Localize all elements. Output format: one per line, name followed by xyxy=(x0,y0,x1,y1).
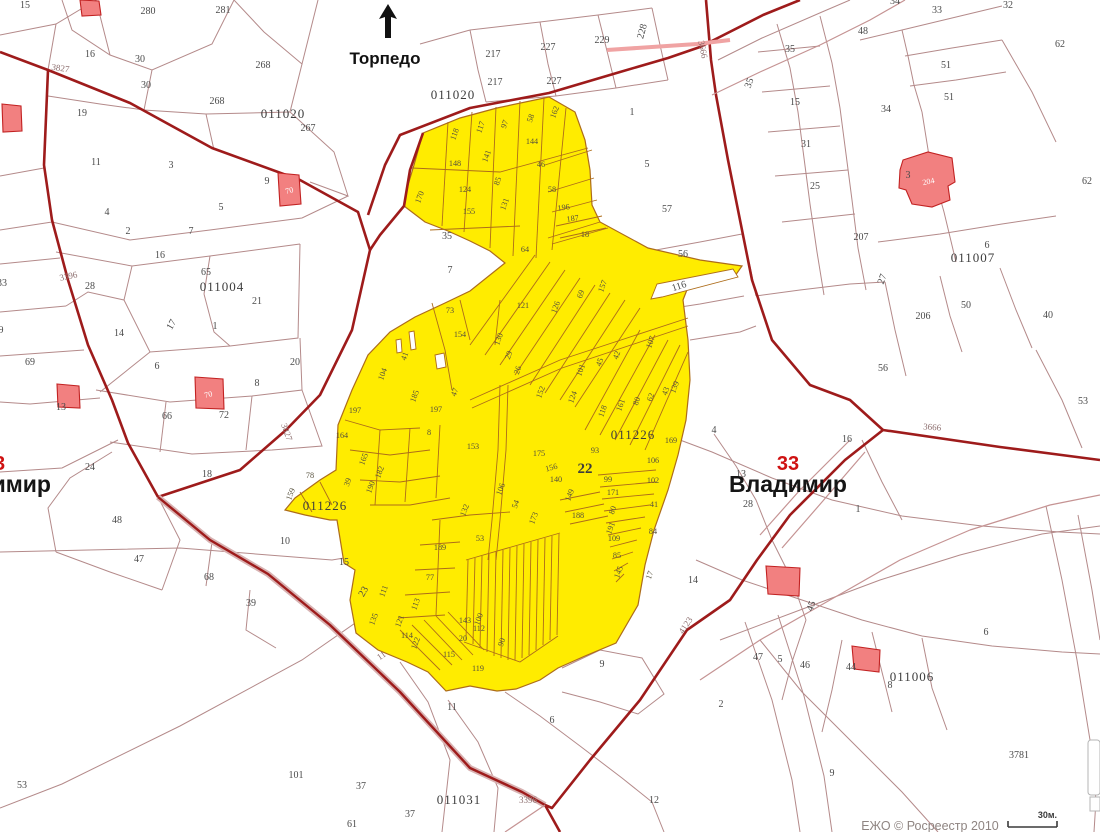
lot-number-label: 119 xyxy=(472,664,484,673)
parcel-number-label: 48 xyxy=(858,26,868,37)
copyright-text: ЕЖО © Росреестр 2010 xyxy=(861,819,999,832)
parcel-number-label: 53 xyxy=(17,780,27,791)
parcel-number-label: 229 xyxy=(595,35,610,46)
north-arrow-icon xyxy=(379,4,397,38)
parcel-boundary-line xyxy=(718,0,850,60)
cadastral-map-canvas[interactable]: 7070204 15280281163030268268267191139542… xyxy=(0,0,1100,832)
parcel-number-label: 40 xyxy=(1043,310,1053,321)
lot-number-label: 175 xyxy=(533,449,545,458)
quarter-number-label[interactable]: 011020 xyxy=(431,87,476,102)
parcel-boundary-line xyxy=(234,0,318,64)
lot-number-label: 20 xyxy=(459,634,467,643)
lot-number-label: 93 xyxy=(591,446,599,455)
lot-number-label: 114 xyxy=(401,631,413,640)
parcel-number-label: 3781 xyxy=(1009,750,1029,761)
lot-number-label: 109 xyxy=(608,534,620,543)
lot-number-label: 140 xyxy=(550,475,562,484)
parcel-boundary-line xyxy=(100,352,150,392)
parcel-number-label: 34 xyxy=(890,0,900,7)
parcel-boundary-line xyxy=(775,170,848,176)
parcel-number-label: 8 xyxy=(255,378,260,389)
parcel-number-label: 12 xyxy=(649,795,659,806)
lot-number-label: 17 xyxy=(644,570,655,581)
parcel-boundary-line xyxy=(124,244,300,352)
quarter-number-label[interactable]: 011020 xyxy=(261,106,306,121)
parcel-number-label: 62 xyxy=(1055,39,1065,50)
parcel-boundary-line xyxy=(860,6,1002,40)
parcel-number-label: 4 xyxy=(105,207,110,218)
parcel-boundary-line xyxy=(420,30,470,44)
parcel-number-label: 10 xyxy=(280,536,290,547)
quarter-number-label[interactable]: 011007 xyxy=(951,250,996,265)
scale-bar-label: 30м. xyxy=(1038,810,1057,820)
parcel-number-label: 25 xyxy=(810,181,820,192)
parcel-number-label: 15 xyxy=(20,0,30,11)
parcel-boundary-line xyxy=(690,326,756,340)
compass-label: Торпедо xyxy=(350,49,421,68)
quarter-number-label[interactable]: 011031 xyxy=(437,792,482,807)
parcel-boundary-line xyxy=(160,402,166,452)
parcel-boundary-line xyxy=(0,398,100,404)
parcel-number-label: 16 xyxy=(85,49,95,60)
lot-number-label: 46 xyxy=(537,160,545,169)
parcel-number-label: 28 xyxy=(85,281,95,292)
parcel-number-label: 30 xyxy=(141,80,151,91)
parcel-number-label: 5 xyxy=(645,159,650,170)
lot-number-label: 153 xyxy=(467,442,479,451)
parcel-boundary-line xyxy=(52,196,348,240)
parcel-22-label: 22 xyxy=(578,461,593,477)
parcel-number-label: 47 xyxy=(753,652,763,663)
parcel-boundary-line xyxy=(0,350,84,356)
parcel-number-label: 1 xyxy=(856,504,861,515)
lot-number-label: 197 xyxy=(349,406,361,415)
parcel-number-label: 72 xyxy=(219,410,229,421)
parcel-number-label: 47 xyxy=(134,554,144,565)
lot-number-label: 115 xyxy=(443,650,455,659)
parcel-boundary-line xyxy=(940,276,962,352)
quarter-number-label[interactable]: 011006 xyxy=(890,669,935,684)
parcel-boundary-line xyxy=(204,294,230,346)
parcel-boundary-line xyxy=(0,168,44,176)
parcel-number-label: 33 xyxy=(932,5,942,16)
parcel-number-label: 17 xyxy=(165,318,180,332)
map-side-control[interactable] xyxy=(1088,740,1100,811)
parcel-boundary-line xyxy=(470,8,652,30)
lot-number-label: 99 xyxy=(604,475,612,484)
parcel-number-label: 53 xyxy=(1078,396,1088,407)
parcel-number-label: 268 xyxy=(256,60,271,71)
parcel-boundary-line xyxy=(0,306,66,312)
lot-number-label: 78 xyxy=(306,471,314,480)
lot-number-label: 148 xyxy=(449,159,461,168)
lot-number-label: 64 xyxy=(521,245,529,254)
lot-number-label: 41 xyxy=(650,500,658,509)
parcel-number-label: 33 xyxy=(0,278,7,289)
parcel-number-label: 34 xyxy=(881,104,891,115)
parcel-boundary-line xyxy=(777,24,824,295)
lot-number-label: 112 xyxy=(473,624,485,633)
parcel-boundary-line xyxy=(1000,268,1032,348)
parcel-number-label: 46 xyxy=(800,660,810,671)
parcel-boundary-line xyxy=(56,552,162,590)
road-number-label: 3666 xyxy=(923,421,942,432)
parcel-number-label: 101 xyxy=(289,770,304,781)
parcel-number-label: 13 xyxy=(56,402,66,413)
lot-number-label: 84 xyxy=(649,527,657,536)
lot-number-label: 144 xyxy=(526,137,538,146)
parcel-boundary-line xyxy=(922,638,947,730)
city-name-label: Владимир xyxy=(0,471,51,497)
parcel-number-label: 62 xyxy=(1082,176,1092,187)
parcel-boundary-line xyxy=(448,700,498,832)
lot-number-label: 188 xyxy=(572,511,584,520)
building-footprint[interactable] xyxy=(80,0,101,16)
parcel-number-label: 6 xyxy=(550,715,555,726)
lot-number-label: 169 xyxy=(665,436,677,445)
parcel-number-label: 69 xyxy=(25,357,35,368)
north-arrow: Торпедо xyxy=(350,4,421,68)
parcel-number-label: 45 xyxy=(805,600,819,613)
parcel-number-label: 3 xyxy=(906,170,911,181)
parcel-number-label: 227 xyxy=(547,76,562,87)
parcel-number-label: 267 xyxy=(301,123,316,134)
parcel-number-label: 19 xyxy=(77,108,87,119)
road-main xyxy=(0,52,370,497)
map-zoom-control[interactable] xyxy=(1088,740,1100,795)
parcel-number-label: 1 xyxy=(630,107,635,118)
parcel-boundary-line xyxy=(822,640,842,732)
parcel-boundary-line xyxy=(905,40,1002,56)
parcel-number-label: 57 xyxy=(662,204,672,215)
road-number-label: 3396 xyxy=(59,269,79,283)
parcel-number-label: 50 xyxy=(961,300,971,311)
lot-number-label: 187 xyxy=(566,213,579,224)
road-pink xyxy=(607,40,730,50)
road-main xyxy=(44,70,158,497)
road-light xyxy=(505,805,545,832)
parcel-boundary-line xyxy=(902,30,922,112)
parcel-number-label: 32 xyxy=(1003,0,1013,11)
parcel-number-label: 18 xyxy=(202,469,212,480)
parcel-number-label: 280 xyxy=(141,6,156,17)
lot-number-label: 77 xyxy=(426,573,434,582)
parcel-number-label: 15 xyxy=(790,97,800,108)
lot-number-label: 58 xyxy=(548,185,556,194)
parcel-boundary-line xyxy=(820,16,866,290)
parcel-number-label: 3 xyxy=(169,160,174,171)
parcel-boundary-line xyxy=(1002,40,1056,142)
parcel-number-label: 48 xyxy=(112,515,122,526)
parcel-boundary-line xyxy=(246,396,252,450)
lot-number-label: 102 xyxy=(647,476,659,485)
lot-number-label: 143 xyxy=(459,616,471,625)
building-footprint[interactable] xyxy=(852,646,880,672)
parcel-boundary-line xyxy=(0,222,52,230)
quarter-number-label[interactable]: 011226 xyxy=(303,498,348,513)
parcel-boundary-line xyxy=(48,452,112,552)
quarter-number-label[interactable]: 011226 xyxy=(611,427,656,442)
parcel-number-label: 207 xyxy=(854,232,869,243)
parcel-number-label: 39 xyxy=(246,598,256,609)
parcel-number-label: 16 xyxy=(155,250,165,261)
parcel-number-label: 2 xyxy=(719,699,724,710)
parcel-number-label: 66 xyxy=(162,411,172,422)
lot-number-label: 53 xyxy=(476,534,484,543)
parcel-boundary-line xyxy=(0,440,118,472)
cadastral-map-page: 7070204 15280281163030268268267191139542… xyxy=(0,0,1100,832)
road-main xyxy=(883,430,1100,460)
parcel-number-label: 228 xyxy=(635,23,650,40)
parcel-number-label: 35 xyxy=(785,44,795,55)
parcel-boundary-line xyxy=(1036,350,1082,448)
parcel-number-label: 21 xyxy=(252,296,262,307)
parcel-number-label: 217 xyxy=(486,49,501,60)
parcel-number-label: 16 xyxy=(842,434,852,445)
parcel-number-label: 6 xyxy=(984,627,989,638)
parcel-number-label: 9 xyxy=(0,325,4,336)
quarter-number-label[interactable]: 011004 xyxy=(200,279,245,294)
road-number-label: 3396 xyxy=(519,795,538,805)
parcel-boundary-line xyxy=(885,282,906,376)
parcel-boundary-line xyxy=(878,216,1056,242)
parcel-number-label: 11 xyxy=(447,702,457,713)
parcel-number-label: 51 xyxy=(944,92,954,103)
parcel-number-label: 35 xyxy=(442,231,452,242)
parcel-boundary-line xyxy=(648,428,1100,534)
parcel-number-label: 65 xyxy=(201,267,211,278)
lot-number-label: 155 xyxy=(463,207,475,216)
lot-number-label: 197 xyxy=(430,405,442,414)
parcel-number-label: 281 xyxy=(216,5,231,16)
quarter-inner-white-parcel xyxy=(435,353,446,369)
lot-number-label: 8 xyxy=(427,428,431,437)
parcel-number-label: 30 xyxy=(135,54,145,65)
parcel-number-label: 11 xyxy=(91,157,101,168)
parcel-number-label: 44 xyxy=(846,662,856,673)
parcel-number-label: 1 xyxy=(213,321,218,332)
parcel-number-label: 24 xyxy=(85,462,95,473)
parcel-number-label: 9 xyxy=(600,659,605,670)
parcel-number-label: 56 xyxy=(878,363,888,374)
parcel-number-label: 61 xyxy=(347,819,357,830)
parcel-number-label: 9 xyxy=(830,768,835,779)
parcel-boundary-line xyxy=(645,234,742,252)
parcel-number-label: 6 xyxy=(155,361,160,372)
parcel-boundary-line xyxy=(910,72,1006,86)
parcel-number-label: 206 xyxy=(916,311,931,322)
lot-number-label: 121 xyxy=(517,301,529,310)
parcel-boundary-line xyxy=(0,258,60,264)
road-main xyxy=(706,0,883,430)
parcel-number-label: 56 xyxy=(678,249,688,260)
lot-number-label: 189 xyxy=(434,543,446,552)
parcel-number-label: 35 xyxy=(743,77,757,90)
parcel-number-label: 2 xyxy=(126,226,131,237)
parcel-number-label: 227 xyxy=(541,42,556,53)
parcel-number-label: 4 xyxy=(712,425,717,436)
lot-number-label: 73 xyxy=(446,306,454,315)
parcel-number-label: 28 xyxy=(743,499,753,510)
parcel-number-label: 7 xyxy=(189,226,194,237)
parcel-number-label: 5 xyxy=(778,654,783,665)
parcel-number-label: 14 xyxy=(688,575,698,586)
parcel-boundary-line xyxy=(782,214,855,222)
parcel-number-label: 217 xyxy=(488,77,503,88)
parcel-number-label: 268 xyxy=(210,96,225,107)
parcel-number-label: 51 xyxy=(941,60,951,71)
parcel-number-label: 27 xyxy=(876,273,890,286)
building-footprint[interactable] xyxy=(2,104,22,132)
parcel-number-label: 14 xyxy=(114,328,124,339)
city-name-label: Владимир xyxy=(729,471,847,497)
parcel-number-label: 68 xyxy=(204,572,214,583)
parcel-number-label: 5 xyxy=(219,202,224,213)
parcel-number-label: 7 xyxy=(448,265,453,276)
scale-bar: 30м. xyxy=(1008,810,1057,827)
parcel-number-label: 31 xyxy=(801,139,811,150)
building-footprint[interactable] xyxy=(766,566,800,596)
lot-number-label: 196 xyxy=(557,202,570,213)
parcel-number-label: 20 xyxy=(290,357,300,368)
lot-number-label: 164 xyxy=(336,431,348,440)
parcel-boundary-line xyxy=(56,244,300,266)
lot-number-label: 124 xyxy=(459,185,471,194)
lot-number-label: 18 xyxy=(581,230,589,239)
map-control-button[interactable] xyxy=(1090,797,1100,811)
lot-number-label: 106 xyxy=(647,456,659,465)
parcel-number-label: 37 xyxy=(405,809,415,820)
parcel-boundary-line xyxy=(762,86,830,92)
lot-number-label: 154 xyxy=(454,330,466,339)
parcel-number-label: 37 xyxy=(356,781,366,792)
lot-number-label: 85 xyxy=(613,551,621,560)
parcel-boundary-line xyxy=(768,126,840,132)
parcel-number-label: 15 xyxy=(339,557,349,568)
lot-number-label: 171 xyxy=(607,488,619,497)
parcel-boundary-line xyxy=(652,8,668,80)
parcel-boundary-line xyxy=(505,692,664,832)
parcel-number-label: 9 xyxy=(265,176,270,187)
